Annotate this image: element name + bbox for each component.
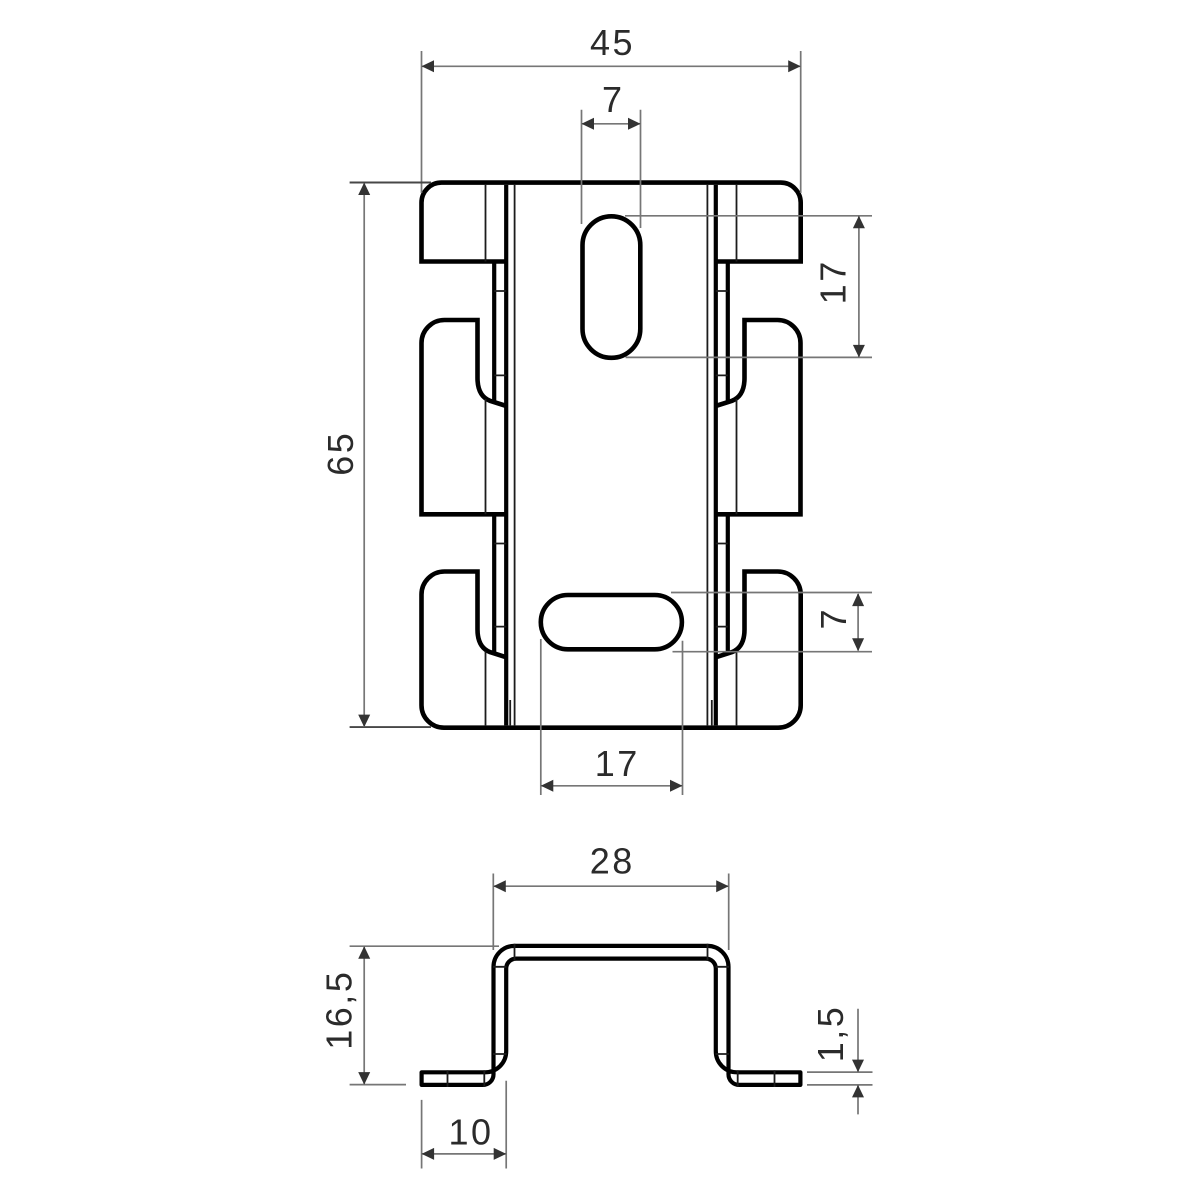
- svg-text:1,5: 1,5: [810, 1005, 851, 1063]
- svg-text:7: 7: [813, 609, 854, 629]
- svg-text:7: 7: [602, 79, 622, 120]
- svg-text:65: 65: [320, 431, 361, 476]
- svg-text:45: 45: [590, 22, 635, 63]
- svg-text:10: 10: [448, 1112, 493, 1153]
- svg-text:17: 17: [813, 259, 854, 304]
- svg-text:17: 17: [595, 743, 640, 784]
- svg-text:16,5: 16,5: [319, 970, 360, 1050]
- svg-text:28: 28: [590, 841, 635, 882]
